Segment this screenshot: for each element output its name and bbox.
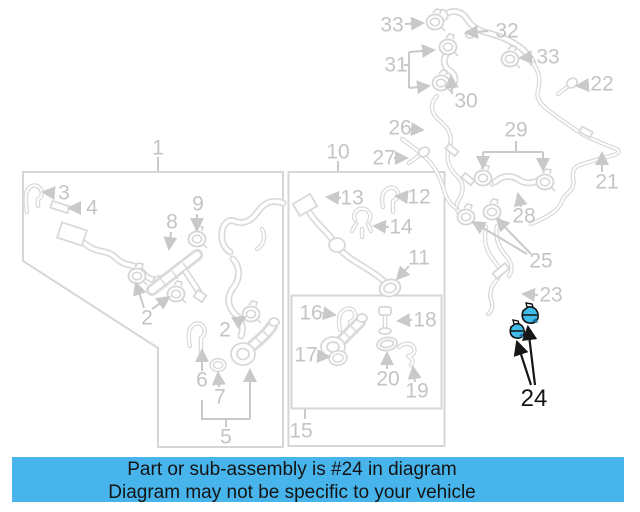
part-label-4: 4 (86, 198, 98, 219)
part-label-33-b: 33 (536, 47, 559, 68)
banner-line-1: Part or sub-assembly is #24 in diagram (12, 457, 572, 480)
bolt-22-icon (558, 76, 579, 94)
highlight-part-24 (510, 303, 538, 385)
part-label-30: 30 (454, 91, 477, 112)
highlighted-clamp-icon (510, 320, 524, 338)
highlighted-clamp-icon (522, 303, 538, 323)
part-label-21: 21 (595, 172, 618, 193)
part-label-26: 26 (388, 118, 411, 139)
part-label-28: 28 (512, 206, 535, 227)
part-label-9: 9 (192, 194, 204, 215)
part-label-31: 31 (384, 55, 407, 76)
parts-diagram-page: 1348922675101312141116181720191533323133… (0, 0, 640, 512)
part-label-22: 22 (590, 74, 613, 95)
part-label-3: 3 (58, 183, 70, 204)
part-label-25: 25 (529, 251, 552, 272)
part-label-23: 23 (539, 285, 562, 306)
part-label-16: 16 (299, 303, 322, 324)
part-label-29: 29 (504, 120, 527, 141)
part-label-20: 20 (376, 369, 399, 390)
part-label-14: 14 (389, 217, 412, 238)
part-label-33-a: 33 (380, 15, 403, 36)
highlight-banner: Part or sub-assembly is #24 in diagram D… (12, 457, 624, 502)
part-label-8: 8 (166, 212, 178, 233)
part-label-11: 11 (408, 248, 430, 269)
part-label-6: 6 (196, 370, 208, 391)
part-label-17: 17 (294, 345, 317, 366)
part-label-2-a: 2 (141, 308, 153, 329)
part-label-10: 10 (326, 142, 349, 163)
part-label-5: 5 (220, 427, 232, 448)
hose-art-box1 (26, 186, 283, 372)
part-label-1: 1 (152, 138, 164, 159)
part-label-18: 18 (413, 310, 436, 331)
part-label-15: 15 (289, 421, 312, 442)
part-label-7: 7 (214, 387, 226, 408)
part-label-2-b: 2 (219, 320, 231, 341)
part-label-24: 24 (521, 387, 548, 411)
part-label-27: 27 (372, 148, 395, 169)
part-label-13: 13 (340, 188, 363, 209)
hose-art-box15 (321, 307, 415, 367)
part-label-12: 12 (407, 187, 430, 208)
part-label-32: 32 (495, 21, 518, 42)
part-label-19: 19 (405, 381, 428, 402)
banner-line-2: Diagram may not be specific to your vehi… (12, 480, 572, 503)
